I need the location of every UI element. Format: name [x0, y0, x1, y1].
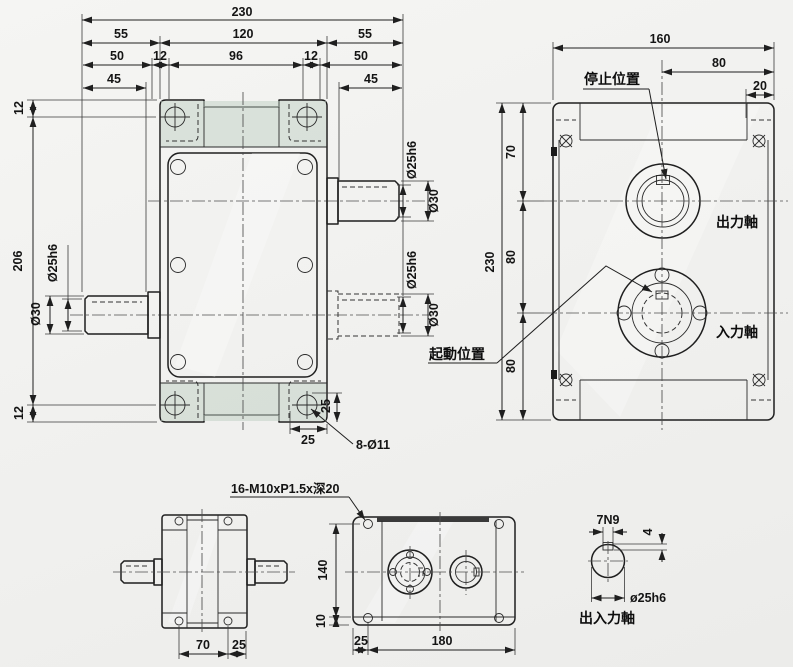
end-body: [162, 515, 247, 628]
dim-out-shaft-shoulder: Ø30: [427, 189, 441, 213]
dim-140: 140: [316, 560, 330, 581]
dim-70-end: 70: [196, 638, 210, 652]
dim-25-horizontal: 25: [301, 433, 315, 447]
dim-20: 20: [753, 79, 767, 93]
bottom-top-strip: [377, 517, 489, 522]
dim-230-side: 230: [483, 252, 497, 273]
front-view: 230 55 120 55 50 12 96 12 50 45 45 12 20…: [11, 5, 441, 452]
hole-note: 8-Ø11: [356, 438, 390, 452]
end-screws: [175, 517, 232, 625]
front-cover-holes: [171, 160, 313, 370]
dim-70-side: 70: [504, 145, 518, 159]
stop-position-label: 停止位置: [584, 71, 640, 87]
dim-section-dia: ø25h6: [630, 591, 666, 605]
dim-206: 206: [11, 251, 25, 272]
dim-180: 180: [432, 634, 453, 648]
io-shaft-label: 出入力軸: [579, 610, 635, 626]
dim-96: 96: [229, 49, 243, 63]
input-shaft-label: 入力軸: [716, 324, 758, 340]
dim-50-left: 50: [110, 49, 124, 63]
side-labels: 停止位置 起動位置 出力軸 入力軸: [428, 71, 758, 363]
dim-12-bottom: 12: [12, 406, 26, 420]
dim-left-shaft-shoulder: Ø30: [29, 302, 43, 326]
bottom-dimensions: 140 10 25 180: [314, 524, 515, 655]
dim-120: 120: [233, 27, 254, 41]
dim-in-shaft-dia: Ø25h6: [405, 251, 419, 289]
side-view: 160 80 20 230 70 80 80 停止位置 起動位置 出力軸 入力軸: [428, 32, 788, 430]
shaft-section-dimensions: 7N9 4 ø25h6: [589, 513, 667, 605]
dim-12-left: 12: [153, 49, 167, 63]
output-shaft-label: 出力軸: [716, 214, 758, 230]
dim-25-vertical: 25: [319, 399, 333, 413]
dim-25-end: 25: [232, 638, 246, 652]
dim-out-shaft-dia: Ø25h6: [405, 141, 419, 179]
technical-drawing-canvas: 230 55 120 55 50 12 96 12 50 45 45 12 20…: [0, 0, 793, 667]
dim-overall-width: 230: [232, 5, 253, 19]
dim-80-top: 80: [712, 56, 726, 70]
shaft-section-detail: 7N9 4 ø25h6 出入力軸: [579, 513, 667, 626]
dim-45-right: 45: [364, 72, 378, 86]
dim-25-bottom: 25: [354, 634, 368, 648]
dim-160: 160: [650, 32, 671, 46]
clamp-mark-top: [551, 147, 557, 156]
bottom-body: [353, 517, 515, 625]
dim-key-depth: 4: [641, 528, 655, 535]
dim-80-bottom: 80: [504, 359, 518, 373]
front-cover-plate: [168, 153, 317, 377]
dim-12-top: 12: [12, 101, 26, 115]
clamp-mark-bottom: [551, 370, 557, 379]
dim-10: 10: [314, 614, 328, 628]
side-body: [551, 103, 774, 420]
tap-note-text: 16-M10xP1.5x深20: [231, 481, 339, 496]
start-position-label: 起動位置: [428, 346, 485, 362]
dim-50-right: 50: [354, 49, 368, 63]
dim-80-mid: 80: [504, 250, 518, 264]
end-view: 70 25: [113, 509, 295, 659]
front-body: [70, 92, 434, 430]
dim-left-shaft-dia: Ø25h6: [46, 244, 60, 282]
dim-12-right: 12: [304, 49, 318, 63]
end-dimensions: 70 25: [179, 626, 246, 659]
dim-in-shaft-shoulder: Ø30: [427, 303, 441, 327]
dim-45-left: 45: [107, 72, 121, 86]
bottom-view: 16-M10xP1.5x深20 140 10 25 180: [230, 481, 524, 655]
dim-key-width: 7N9: [597, 513, 620, 527]
bottom-tap-note: 16-M10xP1.5x深20: [230, 481, 365, 520]
dim-55-right: 55: [358, 27, 372, 41]
dim-55-left: 55: [114, 27, 128, 41]
